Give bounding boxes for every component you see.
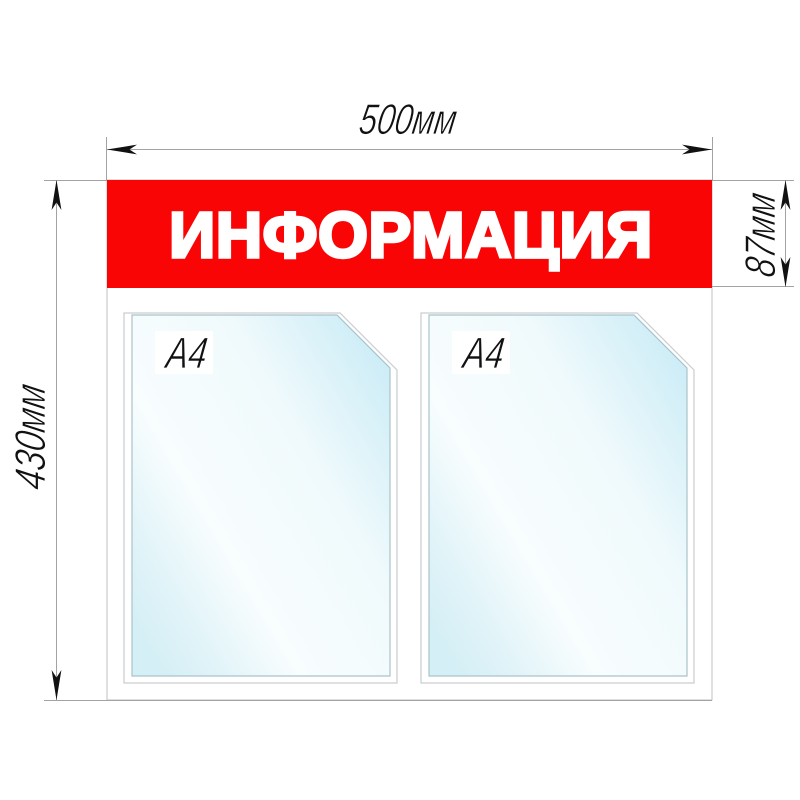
svg-text:А4: А4 (459, 330, 507, 378)
svg-text:А4: А4 (162, 330, 210, 378)
svg-text:87мм: 87мм (737, 189, 785, 280)
svg-text:500мм: 500мм (356, 96, 460, 144)
svg-text:430мм: 430мм (7, 380, 55, 493)
svg-text:ИНФОРМАЦИЯ: ИНФОРМАЦИЯ (169, 199, 653, 271)
